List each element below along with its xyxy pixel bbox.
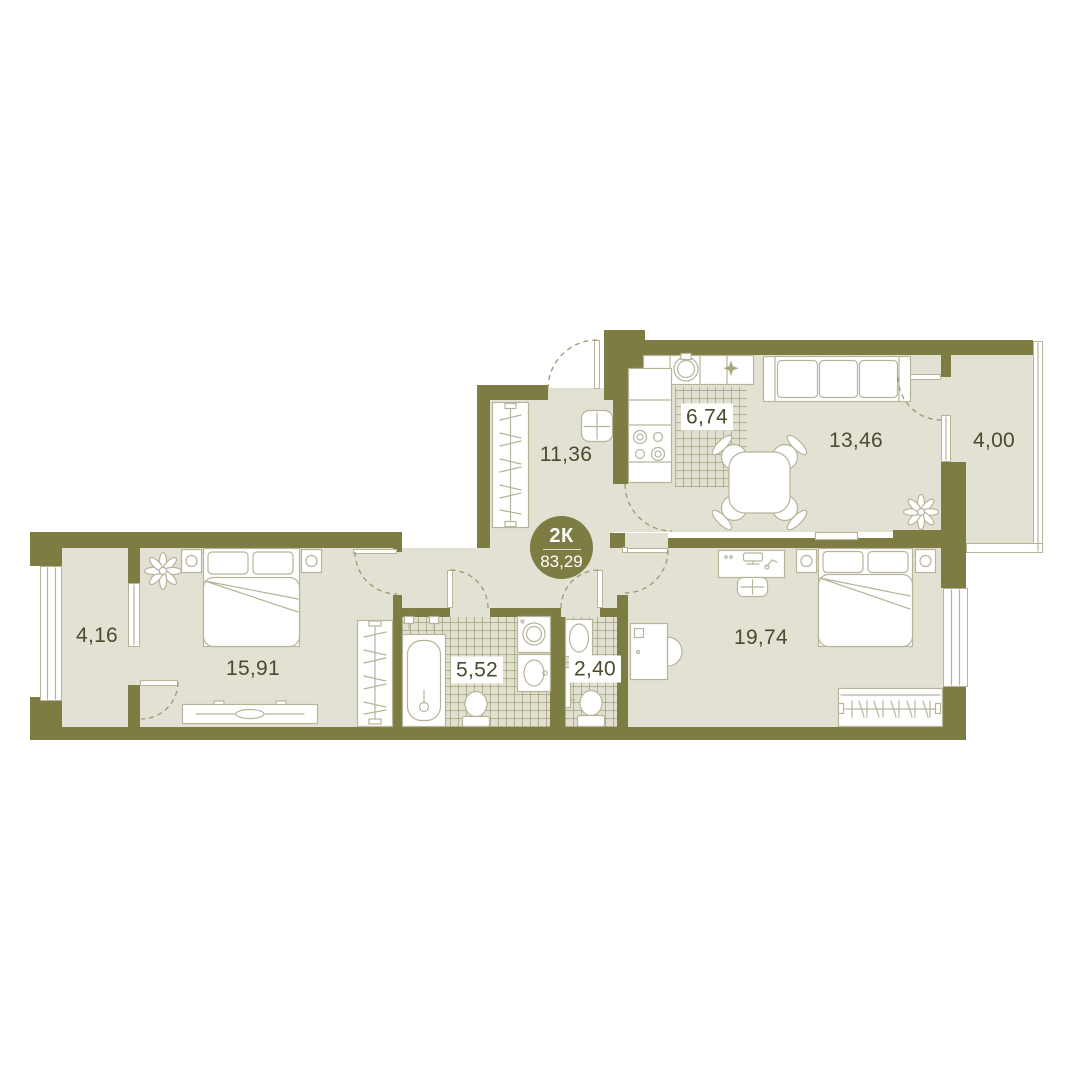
hallway-side-table	[582, 411, 613, 442]
master-bed	[797, 549, 936, 647]
kitchen-opening-arc	[625, 484, 672, 531]
unit-type: 2К	[549, 526, 573, 546]
room-label-bathroom: 5,52	[451, 657, 503, 684]
bedroom-door-arc	[355, 552, 397, 594]
master-wardrobe	[839, 689, 943, 727]
master-dressing-table	[631, 624, 683, 680]
room-label-kitchen: 6,74	[681, 404, 733, 431]
room-label-balcony-left: 4,16	[76, 624, 118, 648]
washing-machine	[518, 617, 551, 653]
wc-sink	[566, 620, 593, 657]
room-label-wc: 2,40	[569, 656, 621, 683]
entry-door-arc	[548, 340, 597, 389]
dining-set	[710, 433, 810, 533]
bedroom-bed	[182, 549, 322, 647]
bedroom-wardrobe	[358, 621, 393, 727]
bathtub	[403, 617, 446, 727]
room-label-hallway: 11,36	[540, 443, 593, 467]
sofa	[764, 357, 911, 402]
unit-badge: 2К 83,29	[530, 516, 593, 579]
wc-toilet	[578, 691, 605, 727]
floor-plan: 11,36 6,74 13,46 4,00 4,16 15,91 5,52 2,…	[0, 0, 1081, 1081]
bathroom-toilet	[463, 692, 490, 727]
master-stool	[738, 578, 768, 597]
badge-divider	[543, 549, 581, 550]
room-label-living: 13,46	[829, 429, 883, 453]
room-label-balcony-right: 4,00	[973, 429, 1015, 453]
room-label-master-bedroom: 19,74	[734, 626, 788, 650]
unit-total-area: 83,29	[540, 553, 583, 570]
bedroom-dresser	[183, 701, 318, 724]
master-desk	[719, 551, 785, 578]
bathroom-door-arc	[450, 570, 488, 608]
balcony-left-door-arc	[141, 682, 178, 719]
bathroom-sink	[518, 655, 551, 692]
master-bedroom-door-arc	[625, 550, 668, 593]
hallway-wardrobe	[493, 403, 529, 528]
room-label-bedroom: 15,91	[226, 657, 280, 681]
tv	[816, 533, 858, 540]
